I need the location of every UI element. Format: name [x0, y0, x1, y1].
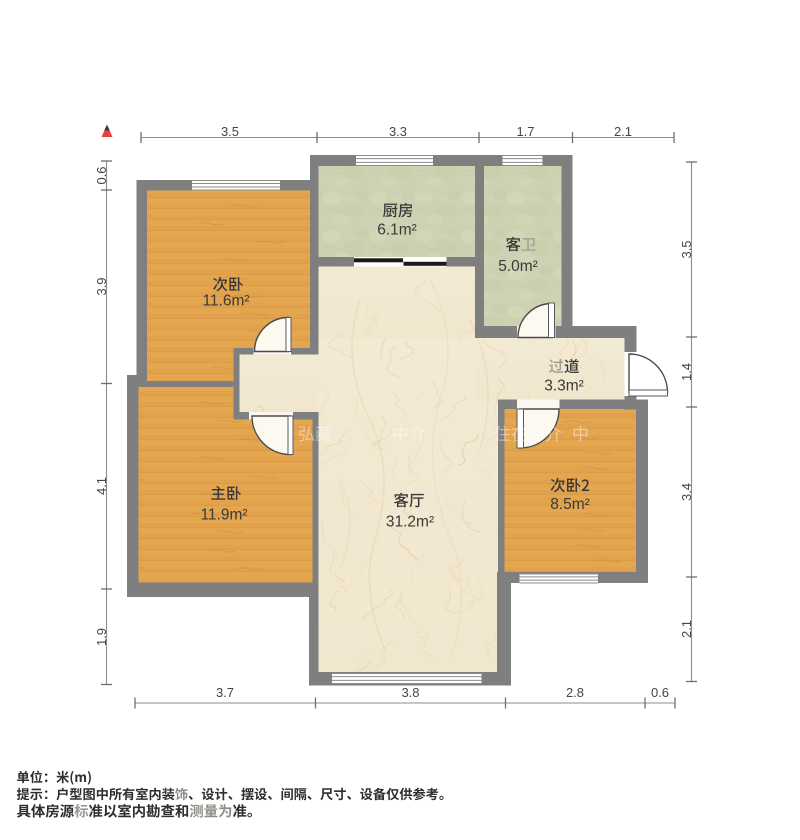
svg-text:0.6: 0.6: [651, 685, 669, 700]
svg-text:3.9: 3.9: [94, 277, 109, 295]
svg-text:3.5: 3.5: [221, 124, 239, 139]
svg-text:5.0m²: 5.0m²: [498, 258, 538, 275]
svg-text:4.1: 4.1: [94, 477, 109, 495]
svg-text:2.8: 2.8: [566, 685, 584, 700]
svg-text:1.4: 1.4: [679, 363, 694, 381]
svg-text:3.5: 3.5: [679, 240, 694, 258]
svg-text:0.6: 0.6: [94, 166, 109, 184]
svg-text:11.6m²: 11.6m²: [202, 293, 249, 310]
svg-text:11.9m²: 11.9m²: [200, 507, 247, 524]
svg-text:3.8: 3.8: [401, 685, 419, 700]
svg-text:3.3m²: 3.3m²: [544, 378, 584, 395]
svg-text:3.4: 3.4: [679, 483, 694, 501]
svg-text:2.1: 2.1: [679, 620, 694, 638]
svg-text:8.5m²: 8.5m²: [550, 496, 590, 513]
svg-text:3.3: 3.3: [389, 124, 407, 139]
svg-text:2.1: 2.1: [614, 124, 632, 139]
svg-text:6.1m²: 6.1m²: [377, 222, 417, 239]
svg-text:1.9: 1.9: [94, 628, 109, 646]
svg-text:3.7: 3.7: [216, 685, 234, 700]
svg-text:1.7: 1.7: [516, 124, 534, 139]
svg-text:31.2m²: 31.2m²: [386, 514, 434, 531]
